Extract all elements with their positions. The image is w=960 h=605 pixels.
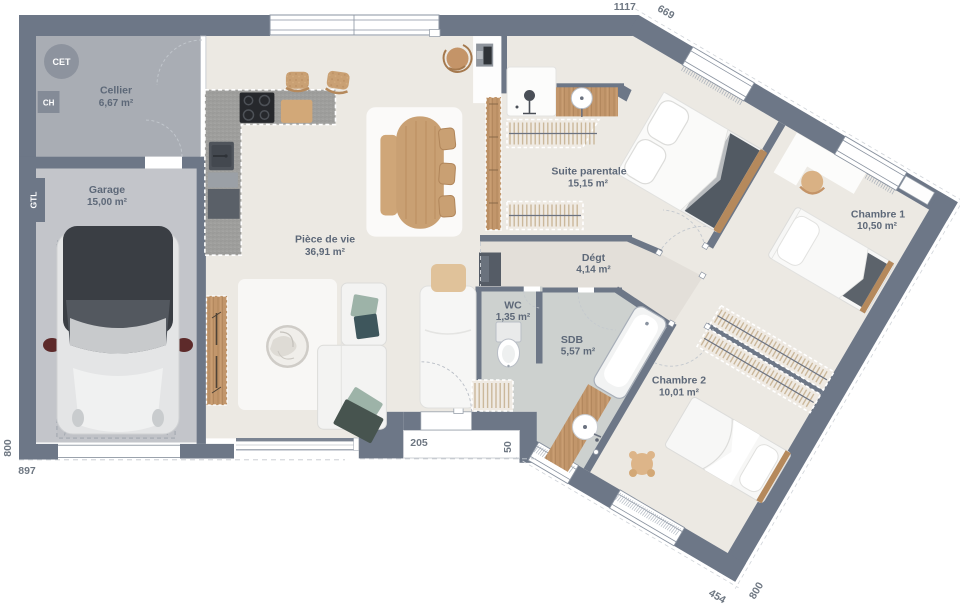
svg-text:1117: 1117	[614, 1, 636, 13]
svg-text:Pièce de vie: Pièce de vie	[295, 234, 355, 246]
svg-text:6,67 m²: 6,67 m²	[99, 98, 134, 109]
svg-text:36,91 m²: 36,91 m²	[305, 247, 346, 258]
svg-text:4,14 m²: 4,14 m²	[576, 265, 611, 276]
svg-text:10,50 m²: 10,50 m²	[857, 221, 898, 232]
svg-text:WC: WC	[504, 300, 522, 312]
svg-text:Suite parentale: Suite parentale	[551, 166, 626, 178]
svg-text:1,35 m²: 1,35 m²	[496, 312, 531, 323]
svg-text:SDB: SDB	[561, 334, 584, 346]
svg-text:205: 205	[410, 437, 428, 449]
svg-text:50: 50	[502, 441, 514, 453]
svg-text:Garage: Garage	[89, 184, 125, 196]
svg-text:15,15 m²: 15,15 m²	[568, 179, 609, 190]
svg-text:Cellier: Cellier	[100, 85, 132, 97]
svg-text:5,57 m²: 5,57 m²	[561, 347, 596, 358]
svg-text:15,00 m²: 15,00 m²	[87, 197, 128, 208]
svg-text:10,01 m²: 10,01 m²	[659, 388, 700, 399]
svg-text:Chambre 1: Chambre 1	[851, 209, 905, 221]
svg-text:GTL: GTL	[29, 192, 39, 209]
svg-text:CET: CET	[53, 57, 72, 67]
svg-text:800: 800	[747, 580, 766, 601]
svg-text:Chambre 2: Chambre 2	[652, 375, 706, 387]
svg-text:669: 669	[655, 3, 676, 22]
svg-text:454: 454	[707, 587, 728, 605]
svg-text:800: 800	[2, 439, 14, 457]
svg-text:Dégt: Dégt	[582, 252, 606, 264]
svg-text:897: 897	[18, 465, 36, 477]
svg-text:CH: CH	[43, 99, 55, 108]
